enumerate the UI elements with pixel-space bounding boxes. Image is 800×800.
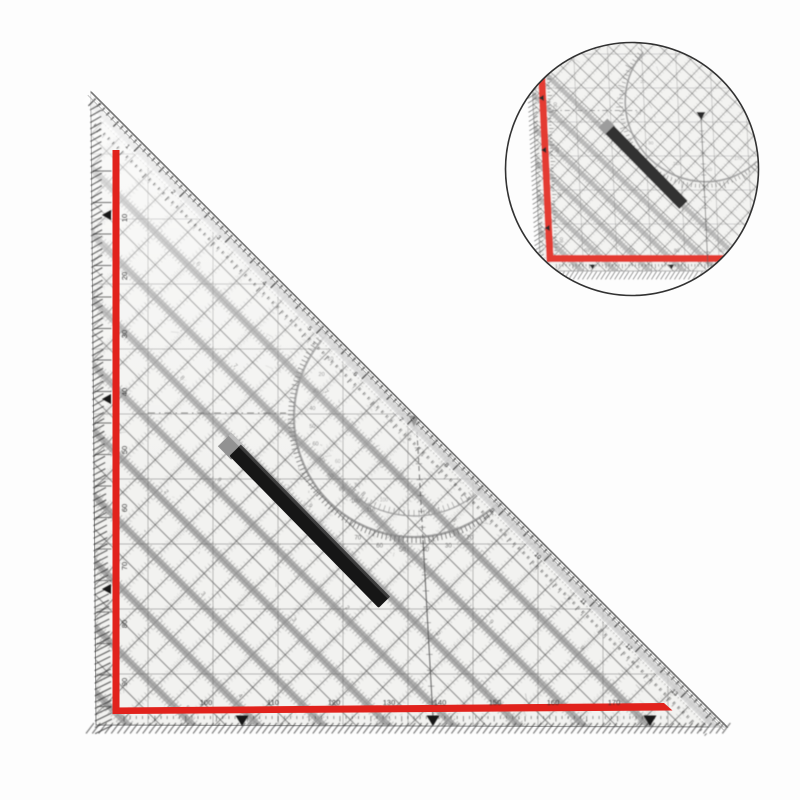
svg-text:140: 140 xyxy=(434,698,447,707)
svg-text:160: 160 xyxy=(547,698,560,707)
svg-text:130: 130 xyxy=(383,698,396,707)
svg-text:60: 60 xyxy=(120,504,129,512)
svg-text:120: 120 xyxy=(328,698,341,707)
svg-text:150: 150 xyxy=(489,698,502,707)
svg-text:10: 10 xyxy=(120,214,129,222)
svg-text:50: 50 xyxy=(120,446,129,454)
svg-text:100: 100 xyxy=(200,698,213,707)
svg-text:170: 170 xyxy=(608,698,621,707)
svg-text:20: 20 xyxy=(120,272,129,280)
svg-text:30: 30 xyxy=(120,330,129,338)
svg-text:40: 40 xyxy=(120,388,129,396)
svg-text:70: 70 xyxy=(120,562,129,570)
svg-text:110: 110 xyxy=(267,698,279,707)
svg-text:80: 80 xyxy=(120,620,129,628)
svg-text:90: 90 xyxy=(120,678,129,686)
